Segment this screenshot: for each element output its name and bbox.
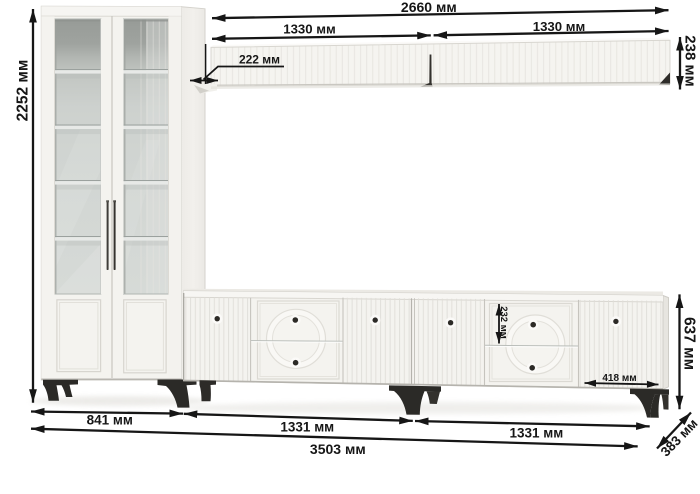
svg-text:2660 мм: 2660 мм	[401, 0, 457, 15]
svg-text:418 мм: 418 мм	[602, 373, 636, 384]
svg-text:2252 мм: 2252 мм	[15, 60, 32, 122]
svg-text:841 мм: 841 мм	[87, 413, 133, 428]
svg-text:232 мм: 232 мм	[498, 306, 509, 339]
svg-text:238 мм: 238 мм	[682, 35, 699, 86]
svg-text:222 мм: 222 мм	[239, 53, 280, 67]
svg-text:1331 мм: 1331 мм	[280, 420, 334, 435]
svg-text:637 мм: 637 мм	[681, 317, 698, 370]
svg-text:1330 мм: 1330 мм	[533, 19, 586, 34]
svg-text:1330 мм: 1330 мм	[283, 22, 336, 37]
svg-text:1331 мм: 1331 мм	[510, 426, 564, 441]
svg-text:3503 мм: 3503 мм	[310, 441, 366, 457]
